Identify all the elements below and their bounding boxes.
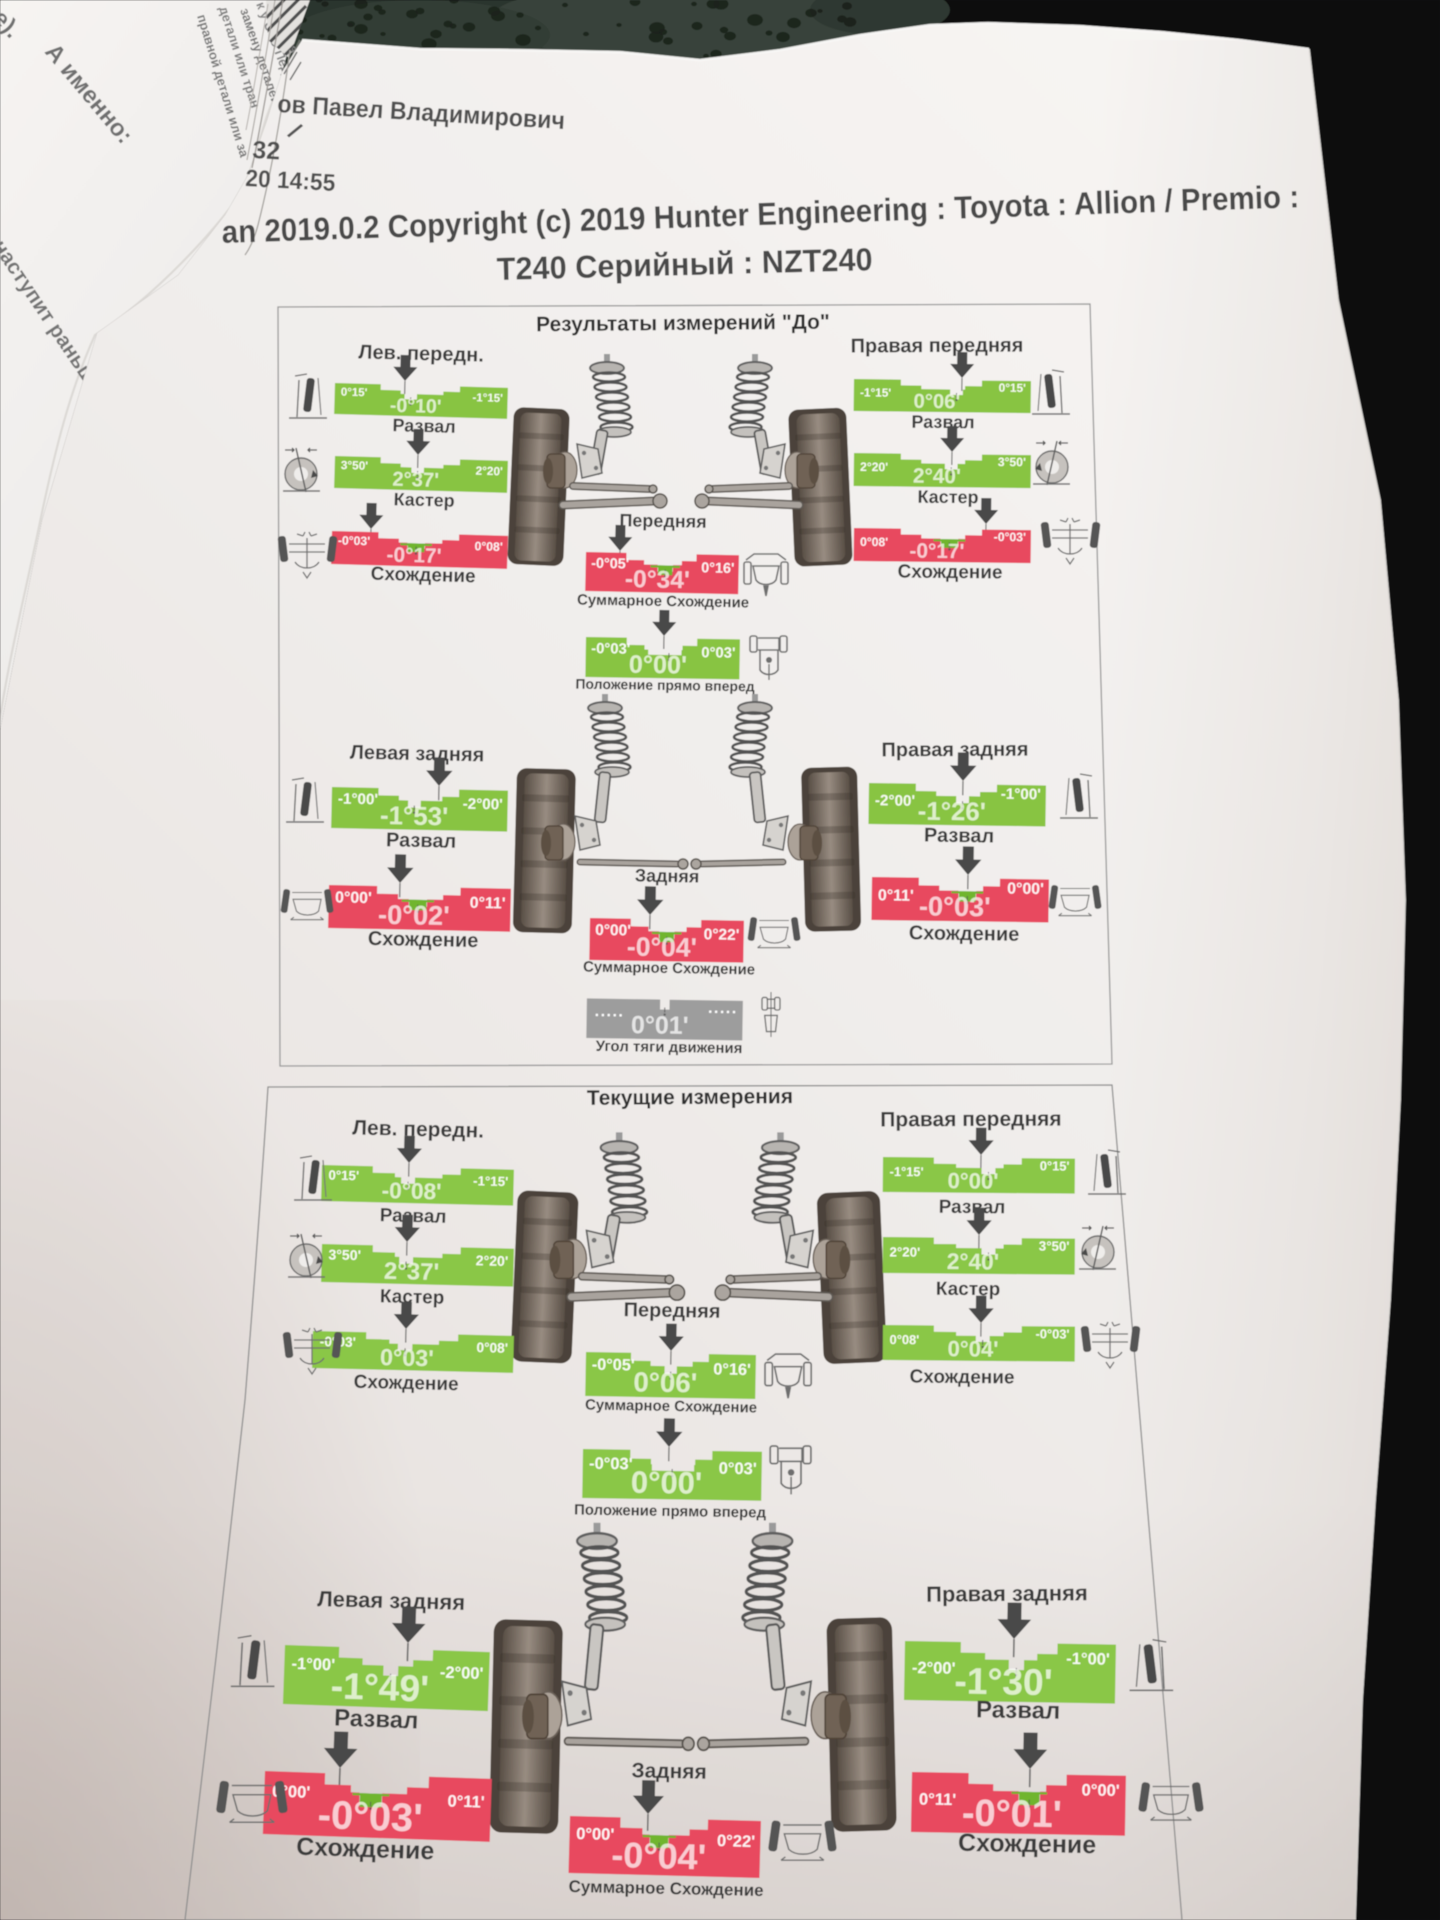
svg-text:Развал: Развал: [976, 1696, 1061, 1724]
svg-text:-1°00': -1°00': [1066, 1650, 1110, 1669]
svg-text:Развал: Развал: [924, 825, 995, 848]
svg-text:0°00': 0°00': [947, 1168, 998, 1193]
svg-text:0°01': 0°01': [631, 1011, 689, 1040]
svg-text:0°16': 0°16': [701, 560, 735, 577]
svg-text:2°37': 2°37': [384, 1258, 440, 1286]
svg-text:2°20': 2°20': [890, 1244, 921, 1259]
svg-text:-0°08': -0°08': [381, 1177, 442, 1204]
svg-text:0°15': 0°15': [328, 1168, 359, 1184]
svg-text:-1°26': -1°26': [918, 798, 986, 827]
svg-text:Правая задняя: Правая задняя: [881, 739, 1028, 762]
svg-text:0°00': 0°00': [335, 889, 372, 907]
svg-text:Угол тяги движения: Угол тяги движения: [596, 1038, 743, 1057]
svg-text:-1°53': -1°53': [380, 802, 449, 831]
svg-text:Схождение: Схождение: [353, 1372, 458, 1396]
svg-text:-2°00': -2°00': [440, 1664, 484, 1684]
svg-text:.....: .....: [708, 1000, 738, 1017]
svg-text:-1°15': -1°15': [472, 392, 503, 405]
svg-text:32: 32: [252, 136, 281, 166]
svg-text:0°08': 0°08': [860, 535, 888, 549]
svg-text:0°00': 0°00': [629, 651, 688, 680]
svg-text:-1°49': -1°49': [330, 1664, 430, 1709]
svg-text:-2°00': -2°00': [912, 1659, 956, 1678]
svg-text:20 14:55: 20 14:55: [245, 165, 336, 197]
svg-text:Лев. передн.: Лев. передн.: [358, 341, 484, 366]
svg-text:Развал: Развал: [334, 1705, 419, 1735]
svg-text:0°08': 0°08': [474, 539, 503, 554]
svg-text:0°11': 0°11': [447, 1792, 485, 1811]
svg-text:-1°15': -1°15': [860, 385, 891, 399]
svg-text:0°15': 0°15': [341, 387, 368, 400]
svg-text:-1°00': -1°00': [1001, 786, 1041, 804]
svg-text:Результаты измерений "До": Результаты измерений "До": [536, 311, 830, 337]
svg-text:.....: .....: [595, 1003, 625, 1020]
svg-text:Схождение: Схождение: [368, 928, 479, 952]
svg-text:2°20': 2°20': [860, 460, 888, 474]
svg-text:0°08': 0°08': [476, 1340, 508, 1356]
svg-text:0°22': 0°22': [717, 1832, 756, 1851]
svg-text:Левая задняя: Левая задняя: [350, 742, 485, 767]
svg-text:Схождение: Схождение: [958, 1829, 1097, 1859]
svg-text:-0°02': -0°02': [378, 899, 450, 931]
svg-text:Суммарное Схождение: Суммарное Схождение: [577, 592, 749, 612]
svg-text:-0°17': -0°17': [909, 540, 964, 564]
svg-text:-1°15': -1°15': [890, 1164, 924, 1179]
svg-text:0°15': 0°15': [1040, 1158, 1070, 1173]
svg-text:-1°15': -1°15': [473, 1173, 508, 1189]
svg-text:0°03': 0°03': [719, 1460, 757, 1479]
svg-text:Текущие измерения: Текущие измерения: [587, 1085, 793, 1110]
svg-text:Схождение: Схождение: [909, 1367, 1014, 1389]
svg-text:2°20': 2°20': [476, 1252, 509, 1269]
svg-text:2°40': 2°40': [947, 1248, 1000, 1274]
svg-text:-2°00': -2°00': [462, 796, 502, 814]
svg-text:Развал: Развал: [392, 415, 456, 437]
svg-text:Развал: Развал: [911, 412, 974, 433]
svg-text:-0°05': -0°05': [592, 1356, 635, 1375]
svg-text:Положение прямо вперед: Положение прямо вперед: [574, 1501, 767, 1521]
svg-text:Правая задняя: Правая задняя: [926, 1580, 1088, 1606]
svg-text:Передняя: Передняя: [623, 1299, 720, 1323]
svg-text:-0°04': -0°04': [611, 1835, 707, 1877]
svg-text:0°00': 0°00': [631, 1465, 703, 1501]
svg-text:-1°00': -1°00': [291, 1655, 335, 1675]
svg-text:Передняя: Передняя: [619, 510, 707, 532]
svg-text:3°50': 3°50': [998, 455, 1026, 469]
svg-text:0°11': 0°11': [878, 887, 914, 904]
svg-text:0°06': 0°06': [914, 391, 961, 414]
svg-text:Развал: Развал: [380, 1205, 447, 1228]
svg-text:0°08': 0°08': [890, 1332, 920, 1347]
svg-text:Развал: Развал: [939, 1197, 1006, 1219]
svg-text:-0°03': -0°03': [1035, 1326, 1069, 1341]
svg-text:-0°04': -0°04': [627, 931, 697, 962]
svg-text:0°03': 0°03': [380, 1344, 434, 1371]
svg-text:0°11': 0°11': [470, 895, 506, 913]
svg-text:0°16': 0°16': [713, 1360, 751, 1379]
svg-text:3°50': 3°50': [1039, 1239, 1070, 1254]
svg-text:Схождение: Схождение: [296, 1833, 435, 1866]
svg-text:Схождение: Схождение: [909, 922, 1020, 946]
svg-text:Правая передняя: Правая передняя: [880, 1108, 1062, 1132]
svg-text:0°06': 0°06': [633, 1366, 697, 1398]
svg-text:-0°34': -0°34': [625, 566, 690, 594]
svg-text:2°40': 2°40': [913, 465, 961, 489]
svg-text:Левая задняя: Левая задняя: [317, 1586, 466, 1615]
svg-text:Положение прямо вперед: Положение прямо вперед: [575, 676, 755, 695]
svg-text:3°50': 3°50': [328, 1246, 361, 1263]
svg-text:Суммарное Схождение: Суммарное Схождение: [585, 1397, 757, 1417]
svg-text:Правая передняя: Правая передняя: [851, 335, 1024, 358]
svg-text:Суммарное Схождение: Суммарное Схождение: [583, 959, 755, 979]
svg-text:2°20': 2°20': [475, 464, 503, 479]
svg-text:Схождение: Схождение: [370, 564, 476, 588]
svg-text:0°04': 0°04': [947, 1336, 998, 1361]
svg-text:-0°03': -0°03': [994, 530, 1026, 544]
svg-text:3°50': 3°50': [341, 458, 369, 473]
svg-text:0°11': 0°11': [919, 1791, 957, 1810]
svg-text:Кастер: Кастер: [917, 487, 978, 508]
svg-text:0°00': 0°00': [1081, 1781, 1119, 1800]
svg-text:Схождение: Схождение: [897, 562, 1002, 584]
svg-text:-1°00': -1°00': [338, 791, 378, 809]
svg-text:0°22': 0°22': [704, 926, 740, 944]
svg-text:Кастер: Кастер: [936, 1279, 1001, 1301]
svg-text:Кастер: Кастер: [393, 489, 455, 511]
svg-text:0°03': 0°03': [701, 645, 735, 662]
svg-text:-0°03': -0°03': [589, 1455, 633, 1474]
svg-text:0°00': 0°00': [1007, 880, 1044, 898]
svg-text:-2°00': -2°00': [875, 792, 915, 810]
svg-text:-0°03': -0°03': [919, 890, 991, 922]
svg-text:0°00': 0°00': [576, 1825, 615, 1844]
svg-text:-0°05': -0°05': [591, 556, 629, 573]
svg-text:Лев. передн.: Лев. передн.: [352, 1116, 484, 1142]
svg-text:Кастер: Кастер: [380, 1286, 445, 1309]
svg-text:Задняя: Задняя: [635, 865, 700, 886]
svg-text:Развал: Развал: [386, 829, 457, 852]
svg-text:0°00': 0°00': [595, 922, 631, 940]
svg-text:-0°03': -0°03': [338, 533, 371, 548]
svg-text:-0°03': -0°03': [591, 641, 630, 658]
svg-text:0°15': 0°15': [999, 381, 1027, 395]
